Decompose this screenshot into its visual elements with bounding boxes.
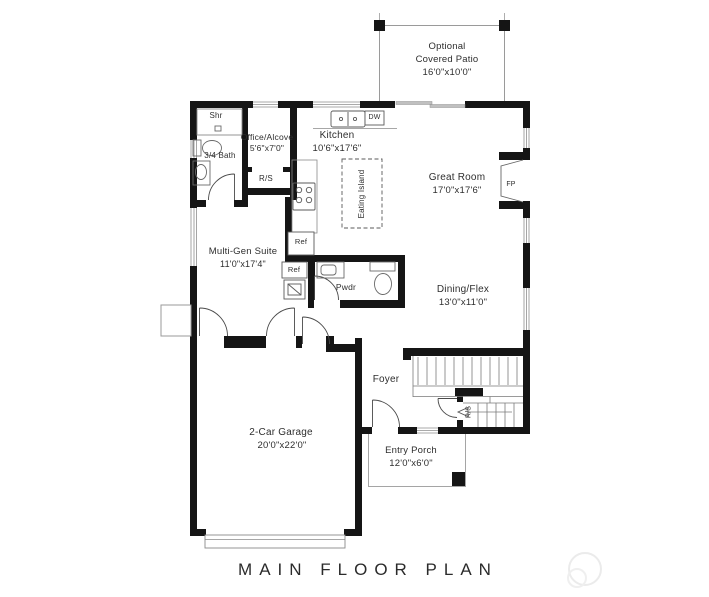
dining-flex-label: Dining/Flex [437,285,489,295]
floor-plan-drawing [0,0,709,597]
stair-closet-label: R/S [466,406,473,418]
shower-label: Shr [209,112,222,120]
garage-label-dims: 20'0"x22'0" [257,441,306,451]
fireplace-label: FP [506,181,515,188]
bath-label: 3/4 Bath [204,152,235,160]
kitchen-fridge-label: Ref [295,238,307,246]
eating-island-label: Eating Island [358,170,366,219]
hall-closet-label: R/S [259,175,273,183]
garage-door [205,535,345,548]
kitchen-label-dims: 10'6"x17'6" [312,144,361,154]
patio-slider-door [396,102,465,108]
dining-flex-label-dims: 13'0"x11'0" [439,298,487,308]
floor-plan-page: Optional Covered Patio 16'0"x10'0" Kitch… [0,0,709,597]
entry-porch-label-dims: 12'0"x6'0" [389,459,433,469]
watermark-logo [568,553,601,587]
office-alcove-label: Office/Alcove [241,133,294,142]
powder-label: Pwdr [336,283,356,292]
doors [200,174,458,427]
patio-label-dims: 16'0"x10'0" [422,68,471,78]
suite-fridge-label: Ref [288,266,300,274]
entry-porch-label: Entry Porch [385,446,437,456]
patio-label-line1: Optional [429,42,466,52]
great-room-label-dims: 17'0"x17'6" [432,186,481,196]
patio-label-line2: Covered Patio [416,55,479,65]
multi-gen-suite-label-dims: 11'0"x17'4" [220,260,266,269]
multi-gen-suite-label: Multi-Gen Suite [209,247,277,257]
great-room-label: Great Room [429,173,485,183]
office-alcove-label-dims: 5'6"x7'0" [250,144,284,153]
plan-title: MAIN FLOOR PLAN [238,560,498,580]
kitchen-label: Kitchen [320,131,355,141]
garage-label: 2-Car Garage [249,428,313,438]
window-seat-bumpout [161,305,191,336]
foyer-label: Foyer [373,375,400,385]
dishwasher-label: DW [368,114,380,121]
